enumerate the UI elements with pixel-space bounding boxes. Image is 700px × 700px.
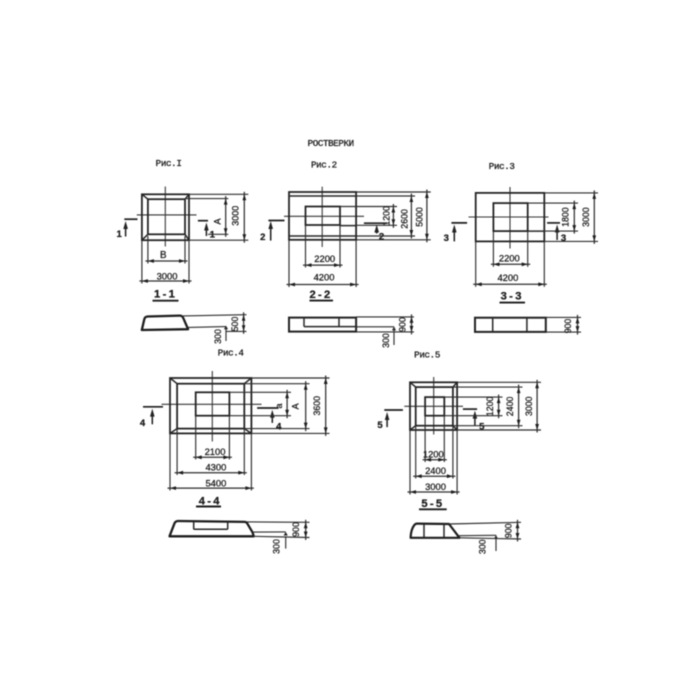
- svg-text:900: 900: [563, 319, 573, 334]
- svg-text:4200: 4200: [497, 272, 518, 283]
- svg-text:3: 3: [561, 233, 566, 244]
- svg-text:а: а: [274, 403, 284, 408]
- svg-text:2: 2: [379, 232, 384, 243]
- svg-text:Рис.4: Рис.4: [218, 347, 245, 358]
- svg-text:300: 300: [381, 333, 391, 348]
- svg-text:300: 300: [477, 539, 487, 554]
- svg-text:3000: 3000: [157, 270, 178, 281]
- svg-text:300: 300: [272, 539, 282, 554]
- svg-text:2200: 2200: [499, 252, 520, 263]
- svg-text:2400: 2400: [425, 465, 446, 476]
- svg-text:2200: 2200: [314, 253, 335, 264]
- svg-text:5: 5: [377, 420, 383, 431]
- svg-text:2400: 2400: [505, 397, 515, 417]
- svg-text:Рис.5: Рис.5: [414, 350, 440, 361]
- svg-text:1-1: 1-1: [154, 289, 177, 301]
- svg-text:5-5: 5-5: [421, 498, 444, 510]
- svg-text:500: 500: [230, 317, 240, 332]
- svg-text:3000: 3000: [524, 396, 534, 416]
- svg-text:Рис.I: Рис.I: [156, 158, 182, 169]
- svg-text:300: 300: [213, 329, 223, 344]
- svg-text:1: 1: [210, 230, 216, 241]
- svg-text:3600: 3600: [312, 396, 322, 416]
- svg-text:900: 900: [503, 523, 513, 538]
- svg-text:1200: 1200: [485, 397, 495, 417]
- svg-text:3: 3: [444, 233, 449, 244]
- svg-text:2100: 2100: [205, 446, 226, 457]
- svg-text:В: В: [160, 250, 167, 261]
- svg-text:5400: 5400: [205, 478, 226, 489]
- svg-text:2600: 2600: [399, 209, 409, 229]
- svg-text:2-2: 2-2: [309, 289, 332, 301]
- svg-text:Рис.3: Рис.3: [489, 161, 515, 172]
- svg-text:РОСТВЕРКИ: РОСТВЕРКИ: [308, 138, 354, 149]
- svg-text:900: 900: [291, 522, 301, 537]
- svg-text:5: 5: [479, 422, 485, 433]
- svg-text:5000: 5000: [414, 207, 424, 227]
- svg-text:4200: 4200: [314, 272, 335, 283]
- svg-text:А: А: [291, 403, 301, 409]
- svg-text:3000: 3000: [581, 207, 591, 227]
- svg-text:Рис.2: Рис.2: [311, 159, 337, 170]
- svg-text:1800: 1800: [560, 207, 570, 227]
- svg-text:1200: 1200: [381, 206, 391, 226]
- svg-text:4: 4: [276, 422, 282, 433]
- svg-text:3000: 3000: [230, 206, 240, 226]
- svg-text:4: 4: [140, 418, 146, 429]
- svg-text:4300: 4300: [205, 462, 226, 473]
- svg-text:3-3: 3-3: [501, 290, 524, 302]
- svg-text:1200: 1200: [423, 448, 444, 459]
- svg-text:3000: 3000: [425, 481, 446, 492]
- svg-text:А: А: [212, 218, 222, 224]
- svg-text:1: 1: [117, 229, 123, 240]
- svg-text:2: 2: [260, 232, 265, 243]
- svg-text:900: 900: [397, 317, 407, 332]
